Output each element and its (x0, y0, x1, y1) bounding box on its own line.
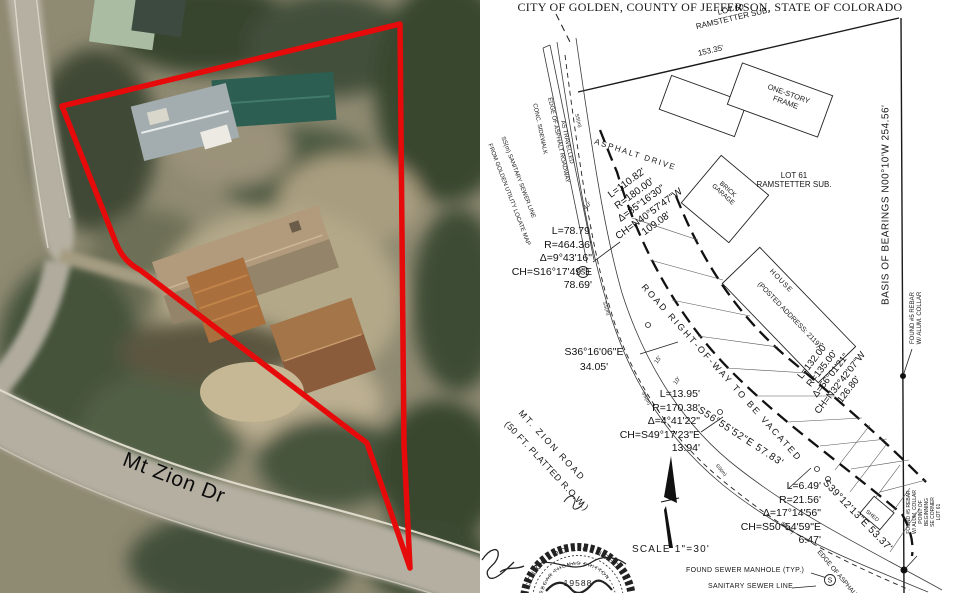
lot-61-number: LOT 61 (748, 171, 840, 180)
rebar-mid-line1: FOUND #5 REBAR (910, 276, 917, 360)
rebar-mid-line2: W/ ALUM. COLLAR (917, 276, 924, 360)
aerial-photo-graphic (0, 0, 480, 593)
curve2-length: L=78.79' (486, 225, 592, 239)
curve5-length: L=6.49' (713, 480, 821, 494)
curve5-chord-dist: 6.47' (713, 534, 821, 548)
svg-text:S: S (828, 578, 833, 585)
bearing-1-direction: S36°16'06"E (544, 345, 644, 360)
curve5-chord: CH=S50°54'59"E (713, 521, 821, 535)
found-manhole-label: FOUND SEWER MANHOLE (TYP.) (686, 567, 804, 575)
sanitary-sewer-label: SANITARY SEWER LINE (708, 583, 793, 591)
curve3-chord-dist: 13.94' (592, 442, 700, 456)
rebar-corner-label: FOUND #5 REBAR W/ ALUM. COLLAR POINT OF … (906, 477, 942, 547)
curve2-radius: R=464.36' (486, 239, 592, 253)
aerial-photo-panel: Mt Zion Dr (0, 0, 480, 593)
lot-61-label: LOT 61 RAMSTETTER SUB. (748, 171, 840, 189)
curve5-delta: Δ=17°14'56" (713, 507, 821, 521)
bearing-1-distance: 34.05' (544, 360, 644, 375)
survey-exhibit: Mt Zion Dr (0, 0, 959, 593)
curve2-chord: CH=S16°17'49"E (486, 266, 592, 280)
curve5-radius: R=21.56' (713, 494, 821, 508)
scale-label: SCALE 1"=30' (632, 544, 710, 556)
curve3-delta: Δ=4°41'22" (592, 415, 700, 429)
bearing-1-label: S36°16'06"E 34.05' (544, 345, 644, 374)
plat-drawing-panel: S S COLORADO LICENSED EDGAR THOMAS BRITT… (480, 0, 959, 593)
rebar-mid-label: FOUND #5 REBAR W/ ALUM. COLLAR (910, 276, 924, 360)
north-arrow-icon (661, 456, 679, 548)
curve2-chord-dist: 78.69' (486, 279, 592, 293)
curve-table-2: L=78.79' R=464.36' Δ=9°43'16" CH=S16°17'… (486, 225, 592, 293)
rebar-corner-line6: LOT 61 (936, 477, 942, 547)
lot-61-subdivision: RAMSTETTER SUB. (748, 180, 840, 189)
curve2-delta: Δ=9°43'16" (486, 252, 592, 266)
surveyor-seal: COLORADO LICENSED EDGAR THOMAS BRITTON 1… (524, 546, 632, 593)
curve3-chord: CH=S49°17'23"E (592, 429, 700, 443)
curve-table-5: L=6.49' R=21.56' Δ=17°14'56" CH=S50°54'5… (713, 480, 821, 548)
basis-of-bearings-label: BASIS OF BEARINGS N00°10'W 254.56' (880, 90, 892, 320)
